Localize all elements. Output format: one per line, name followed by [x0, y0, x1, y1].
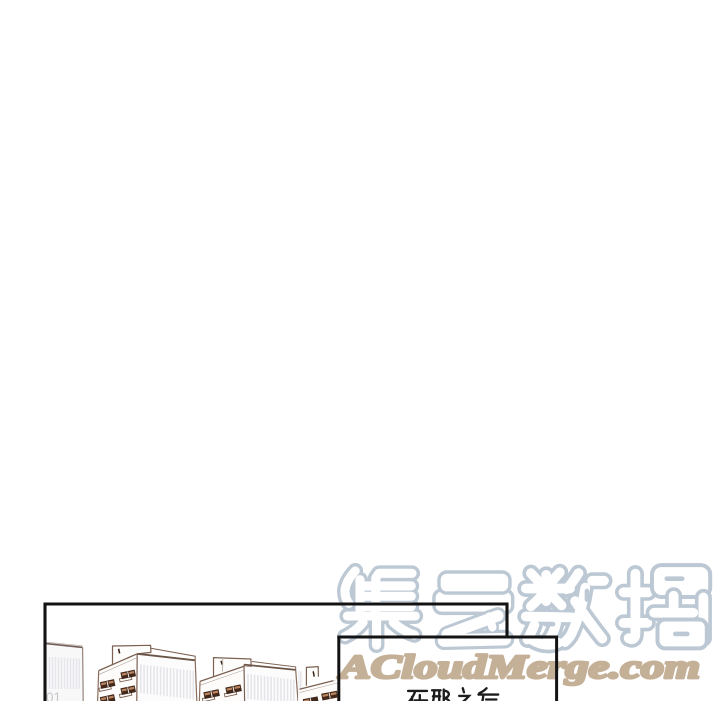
svg-text:ACloudMerge.com: ACloudMerge.com — [337, 649, 700, 686]
svg-text:01: 01 — [46, 690, 61, 701]
